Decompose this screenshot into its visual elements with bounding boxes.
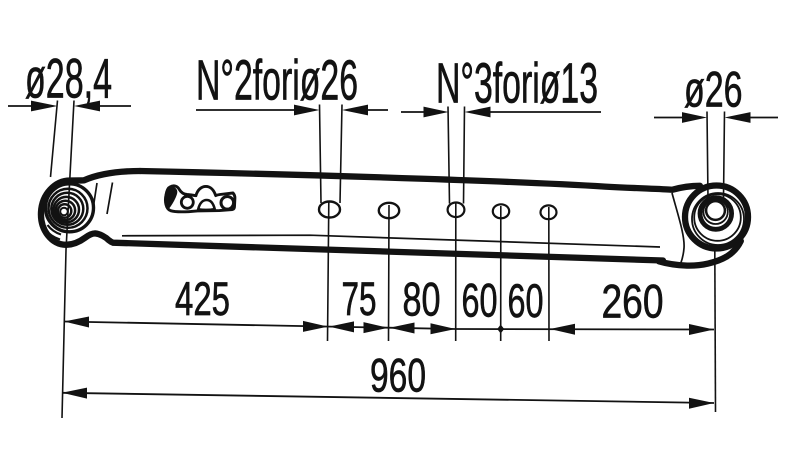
svg-text:60: 60 (462, 274, 498, 327)
svg-text:75: 75 (342, 272, 377, 325)
svg-text:60: 60 (508, 274, 544, 327)
svg-text:N°2foriø26: N°2foriø26 (196, 49, 358, 113)
svg-text:260: 260 (602, 275, 664, 328)
svg-text:80: 80 (403, 273, 441, 326)
svg-text:N°3foriø13: N°3foriø13 (436, 52, 598, 116)
svg-text:960: 960 (370, 349, 426, 402)
svg-text:425: 425 (175, 272, 230, 325)
svg-text:ø26: ø26 (684, 61, 743, 117)
svg-text:ø28,4: ø28,4 (25, 47, 112, 110)
